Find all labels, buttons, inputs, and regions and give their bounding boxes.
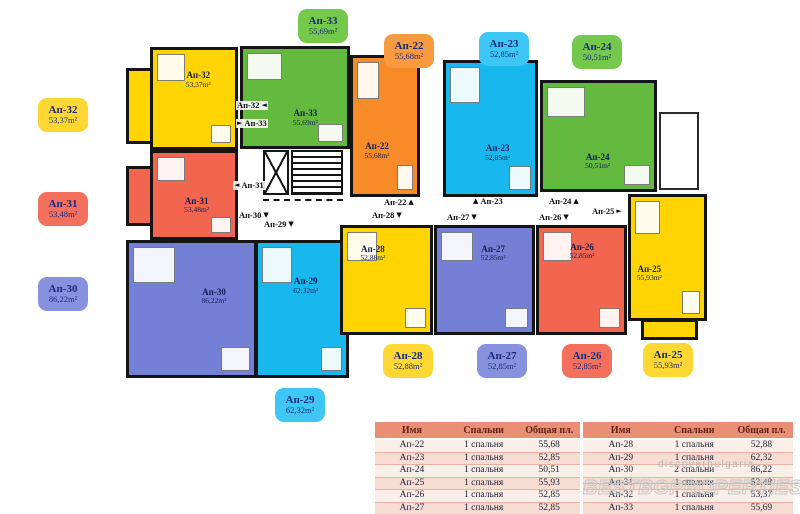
unit-label-ap26: Ап-26 52,85m² [570, 243, 595, 260]
unit-label-ap27: Ап-27 52,85m² [481, 245, 506, 262]
corridor-label-ap32: Ап-32 ◄ [236, 101, 268, 110]
cell-name: Ап-26 [375, 490, 449, 503]
corridor-label-text: Ап-23 [480, 197, 502, 206]
badge-area: 86,22m² [49, 295, 77, 304]
table-row: Ап-23 1 спальня 52,85 [375, 452, 580, 465]
unit-area: 53,48m² [184, 206, 209, 214]
col-header-bedrooms: Спальни [659, 422, 730, 439]
unit-area: 62,32m² [293, 287, 318, 295]
unit-label-ap22: Ап-22 55,68m² [365, 142, 390, 159]
unit-area: 50,51m² [585, 162, 610, 170]
unit-ap26: Ап-26 52,85m² [536, 225, 627, 335]
unit-ap33: Ап-33 55,69m² [240, 46, 350, 149]
area-badge-ap25: Ап-25 55,93m² [643, 343, 693, 377]
corridor-label-text: Ап-28 [372, 211, 394, 220]
area-badge-ap31: Ап-31 53,48m² [38, 192, 88, 226]
watermark-large-text: BESTBGPROPERTIES [583, 477, 800, 500]
unit-ap32: Ап-32 53,37m² [150, 47, 238, 150]
corridor-label-text: Ап-32 [237, 101, 259, 110]
corridor-label-ap26: Ап-26 ▼ [538, 213, 570, 222]
corridor-label-ap27: Ап-27 ▼ [446, 213, 478, 222]
cell-bedrooms: 1 спальня [449, 490, 519, 503]
balcony-wing-ap32 [126, 68, 153, 144]
table-header-row: Имя Спальни Общая пл. [583, 422, 793, 439]
cell-area: 55,93 [518, 477, 580, 490]
cell-bedrooms: 1 спальня [449, 477, 519, 490]
cell-name: Ап-24 [375, 465, 449, 478]
corridor-label-ap29: Ап-29 ▼ [263, 220, 295, 229]
cell-bedrooms: 1 спальня [659, 439, 730, 452]
area-badge-ap30: Ап-30 86,22m² [38, 277, 88, 311]
cell-bedrooms: 1 спальня [659, 502, 730, 514]
entry-arrow-icon: ► [616, 208, 621, 215]
unit-area: 52,85m² [570, 252, 595, 260]
cell-name: Ап-28 [583, 439, 659, 452]
entry-arrow-icon: ◄ [261, 102, 266, 109]
unit-label-ap24: Ап-24 50,51m² [585, 153, 610, 170]
cell-name: Ап-30 [583, 465, 659, 478]
unit-ap30: Ап-30 86,22m² [126, 240, 257, 378]
area-badge-ap23: Ап-23 52,85m² [479, 32, 529, 66]
area-badge-ap27: Ап-27 52,85m² [477, 344, 527, 378]
unit-ap22: Ап-22 55,68m² [350, 55, 420, 197]
corridor-label-text: Ап-25 [592, 207, 614, 216]
corridor-label-ap25: Ап-25 ► [591, 207, 623, 216]
elevator-icon [263, 150, 289, 195]
col-header-name: Имя [375, 422, 449, 439]
entry-arrow-icon: ▲ [473, 198, 478, 205]
entrance-stub-ap25 [641, 319, 698, 340]
unit-label-ap23: Ап-23 52,85m² [485, 144, 510, 161]
area-badge-ap29: Ап-29 62,32m² [275, 388, 325, 422]
area-badge-ap22: Ап-22 55,68m² [384, 34, 434, 68]
cell-name: Ап-22 [375, 439, 449, 452]
table-row: Ап-33 1 спальня 55,69 [583, 502, 793, 514]
unit-ap27: Ап-27 52,85m² [434, 225, 535, 335]
unit-ap31: Ап-31 53,48m² [150, 150, 238, 240]
cell-name: Ап-25 [375, 477, 449, 490]
table-row: Ап-27 1 спальня 52,85 [375, 502, 580, 514]
cell-area: 52,85 [518, 490, 580, 503]
table-header-row: Имя Спальни Общая пл. [375, 422, 580, 439]
unit-label-ap32: Ап-32 53,37m² [186, 71, 211, 88]
unit-area: 86,22m² [202, 297, 227, 305]
watermark-small-text: discoverbulgaria [658, 459, 755, 470]
badge-area: 53,48m² [49, 210, 77, 219]
cell-name: Ап-27 [375, 502, 449, 514]
table-row: Ап-28 1 спальня 52,88 [583, 439, 793, 452]
corridor-label-ap24: Ап-24 ▲ [548, 197, 580, 206]
unit-area: 55,69m² [293, 119, 318, 127]
floor-plan-image: Ап-32 53,37m² Ап-33 55,69m² Ап-31 53,48m… [0, 0, 800, 513]
col-header-bedrooms: Спальни [449, 422, 519, 439]
area-badge-ap33: Ап-33 55,69m² [298, 9, 348, 43]
cell-area: 50,51 [518, 465, 580, 478]
unit-area: 53,37m² [186, 81, 211, 89]
table-row: Ап-26 1 спальня 52,85 [375, 490, 580, 503]
corridor-label-text: Ап-22 [384, 198, 406, 207]
balcony [659, 112, 699, 190]
unit-ap28: Ап-28 52,88m² [340, 225, 433, 335]
cell-area: 52,85 [518, 452, 580, 465]
corridor-dashline [263, 199, 343, 201]
entry-arrow-icon: ▲ [573, 198, 578, 205]
col-header-area: Общая пл. [730, 422, 793, 439]
unit-label-ap28: Ап-28 52,88m² [360, 245, 385, 262]
area-badge-ap24: Ап-24 50,51m² [572, 35, 622, 69]
unit-area: 52,88m² [360, 254, 385, 262]
badge-area: 52,88m² [394, 362, 422, 371]
cell-area: 52,85 [518, 502, 580, 514]
stairs-icon [291, 150, 343, 195]
unit-ap23: Ап-23 52,85m² [443, 60, 538, 197]
corridor-label-text: Ап-31 [241, 181, 263, 190]
badge-area: 52,85m² [573, 362, 601, 371]
entry-arrow-icon: ▼ [288, 221, 293, 228]
unit-ap29: Ап-29 62,32m² [255, 240, 349, 378]
table-row: Ап-24 1 спальня 50,51 [375, 465, 580, 478]
unit-ap24: Ап-24 50,51m² [540, 80, 657, 192]
unit-label-ap30: Ап-30 86,22m² [202, 288, 227, 305]
cell-bedrooms: 1 спальня [449, 452, 519, 465]
cell-area: 52,88 [730, 439, 793, 452]
corridor-label-text: Ап-33 [244, 119, 266, 128]
area-badge-ap32: Ап-32 53,37m² [38, 98, 88, 132]
table-row: Ап-25 1 спальня 55,93 [375, 477, 580, 490]
corridor-label-ap22: Ап-22 ▲ [383, 198, 415, 207]
cell-name: Ап-33 [583, 502, 659, 514]
corridor-label-text: Ап-27 [447, 213, 469, 222]
apartment-table-left: Имя Спальни Общая пл. Ап-22 1 спальня 55… [375, 422, 580, 514]
balcony-wing-ap31 [126, 166, 153, 226]
col-header-name: Имя [583, 422, 659, 439]
area-badge-ap26: Ап-26 52,85m² [562, 344, 612, 378]
entry-arrow-icon: ▼ [396, 212, 401, 219]
area-badge-ap28: Ап-28 52,88m² [383, 344, 433, 378]
unit-ap25: Ап-25 55,93m² [628, 194, 707, 321]
unit-label-ap25: Ап-25 55,93m² [637, 265, 662, 282]
badge-area: 62,32m² [286, 406, 314, 415]
corridor-label-ap31: ◄ Ап-31 [233, 181, 265, 190]
unit-area: 55,68m² [365, 152, 390, 160]
corridor-label-ap23: ▲ Ап-23 [472, 197, 504, 206]
cell-name: Ап-29 [583, 452, 659, 465]
cell-bedrooms: 1 спальня [449, 465, 519, 478]
unit-label-ap31: Ап-31 53,48m² [184, 197, 209, 214]
cell-bedrooms: 1 спальня [449, 439, 519, 452]
badge-area: 52,85m² [490, 50, 518, 59]
unit-area: 52,85m² [485, 154, 510, 162]
entry-arrow-icon: ▲ [408, 199, 413, 206]
badge-area: 55,93m² [654, 361, 682, 370]
badge-area: 55,69m² [309, 27, 337, 36]
unit-label-ap33: Ап-33 55,69m² [293, 109, 318, 126]
entry-arrow-icon: ◄ [234, 182, 239, 189]
unit-label-ap29: Ап-29 62,32m² [293, 277, 318, 294]
entry-arrow-icon: ▼ [563, 214, 568, 221]
corridor-label-ap28: Ап-28 ▼ [371, 211, 403, 220]
entry-arrow-icon: ▼ [471, 214, 476, 221]
badge-area: 52,85m² [488, 362, 516, 371]
col-header-area: Общая пл. [518, 422, 580, 439]
corridor-label-text: Ап-26 [539, 213, 561, 222]
unit-area: 55,93m² [637, 274, 662, 282]
badge-area: 53,37m² [49, 116, 77, 125]
corridor-label-text: Ап-24 [549, 197, 571, 206]
entry-arrow-icon: ► [237, 120, 242, 127]
corridor-label-text: Ап-29 [264, 220, 286, 229]
cell-area: 55,69 [730, 502, 793, 514]
cell-area: 55,68 [518, 439, 580, 452]
cell-bedrooms: 1 спальня [449, 502, 519, 514]
unit-area: 52,85m² [481, 254, 506, 262]
badge-area: 50,51m² [583, 53, 611, 62]
corridor-label-text: Ап-30 [239, 211, 261, 220]
corridor-label-ap33: ► Ап-33 [236, 119, 268, 128]
badge-area: 55,68m² [395, 52, 423, 61]
cell-name: Ап-23 [375, 452, 449, 465]
table-row: Ап-22 1 спальня 55,68 [375, 439, 580, 452]
